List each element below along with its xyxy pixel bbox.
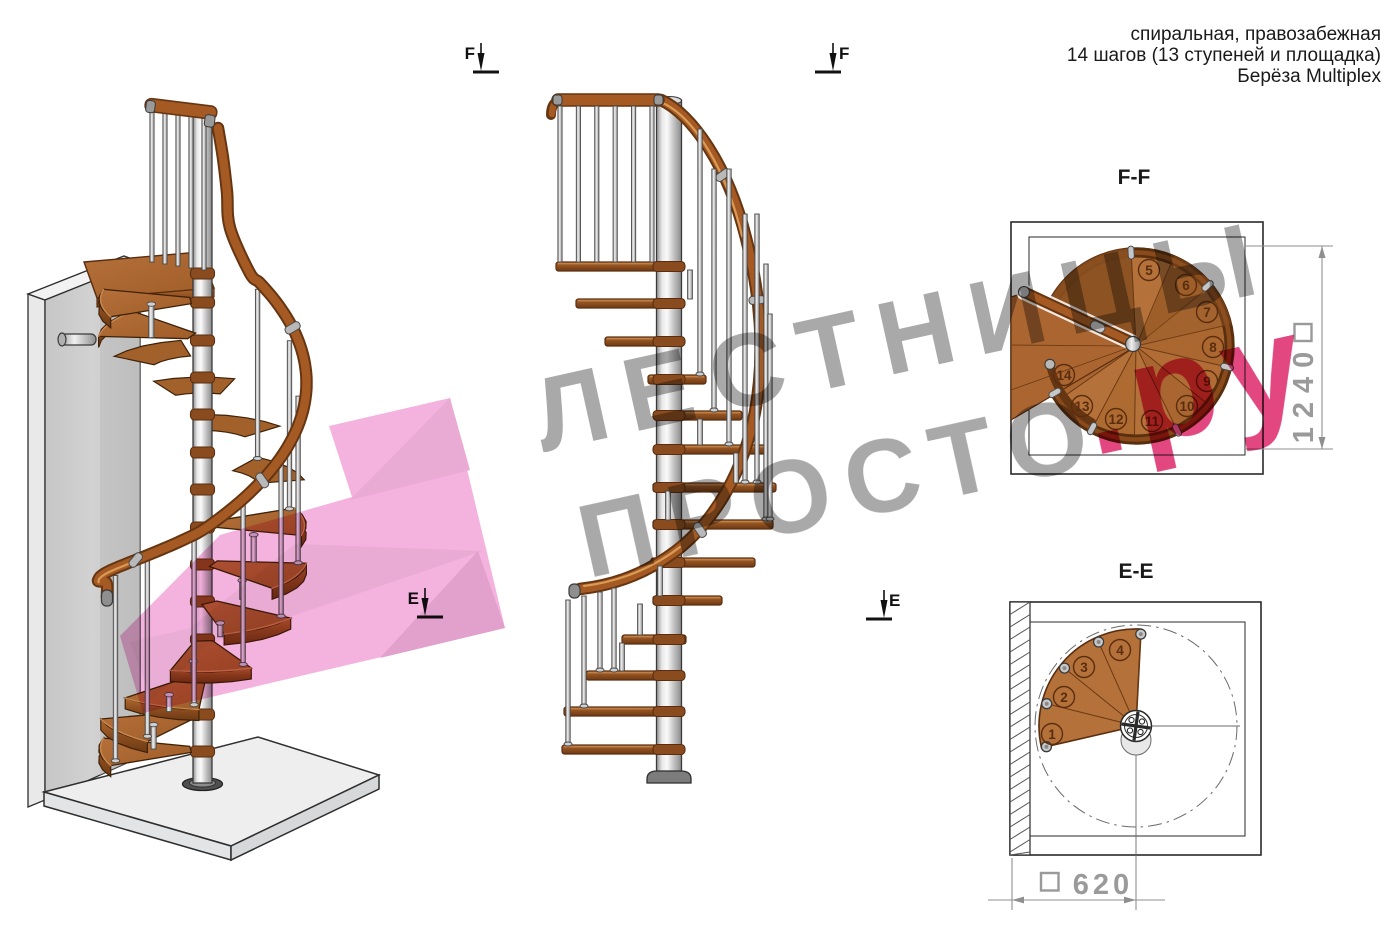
svg-text:F: F	[839, 44, 849, 63]
svg-text:1: 1	[1048, 727, 1056, 742]
svg-text:F-F: F-F	[1118, 166, 1151, 189]
svg-text:спиральная, правозабежная: спиральная, правозабежная	[1131, 24, 1381, 45]
svg-text:4: 4	[1116, 643, 1124, 658]
svg-text:F: F	[465, 44, 475, 63]
svg-text:620: 620	[1073, 869, 1133, 901]
svg-text:E: E	[889, 591, 900, 610]
svg-text:14 шагов (13 ступеней и площад: 14 шагов (13 ступеней и площадка)	[1067, 45, 1381, 66]
svg-text:E-E: E-E	[1118, 560, 1153, 583]
svg-text:Берёза Multiplex: Берёза Multiplex	[1237, 66, 1381, 87]
svg-text:2: 2	[1060, 690, 1068, 705]
svg-text:3: 3	[1080, 660, 1088, 675]
